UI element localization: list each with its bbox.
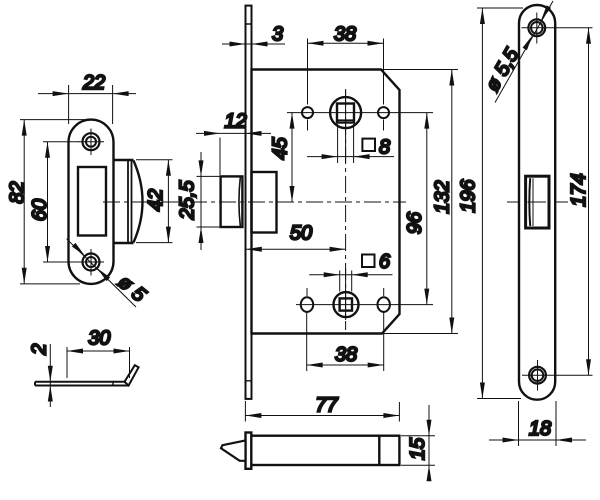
svg-text:174: 174 bbox=[568, 173, 590, 206]
svg-text:42: 42 bbox=[145, 189, 167, 211]
svg-text:22: 22 bbox=[82, 72, 105, 94]
svg-text:30: 30 bbox=[88, 328, 110, 350]
svg-text:3: 3 bbox=[272, 24, 283, 46]
svg-text:2: 2 bbox=[29, 344, 51, 356]
svg-text:196: 196 bbox=[458, 178, 480, 212]
svg-text:8: 8 bbox=[379, 137, 390, 159]
svg-text:45: 45 bbox=[270, 137, 292, 160]
svg-text:12: 12 bbox=[224, 111, 246, 133]
svg-text:50: 50 bbox=[290, 223, 312, 245]
svg-text:60: 60 bbox=[29, 199, 51, 221]
svg-text:38: 38 bbox=[335, 344, 357, 366]
svg-text:6: 6 bbox=[379, 251, 391, 273]
svg-text:ø 5,5: ø 5,5 bbox=[482, 44, 524, 95]
svg-text:18: 18 bbox=[529, 418, 551, 440]
svg-text:15: 15 bbox=[407, 437, 429, 460]
svg-text:ø 5: ø 5 bbox=[114, 271, 151, 307]
svg-text:38: 38 bbox=[334, 24, 356, 46]
svg-text:132: 132 bbox=[432, 180, 454, 213]
svg-text:82: 82 bbox=[7, 181, 29, 203]
svg-text:25,5: 25,5 bbox=[176, 180, 198, 221]
svg-text:77: 77 bbox=[315, 395, 338, 417]
svg-text:96: 96 bbox=[404, 211, 426, 234]
